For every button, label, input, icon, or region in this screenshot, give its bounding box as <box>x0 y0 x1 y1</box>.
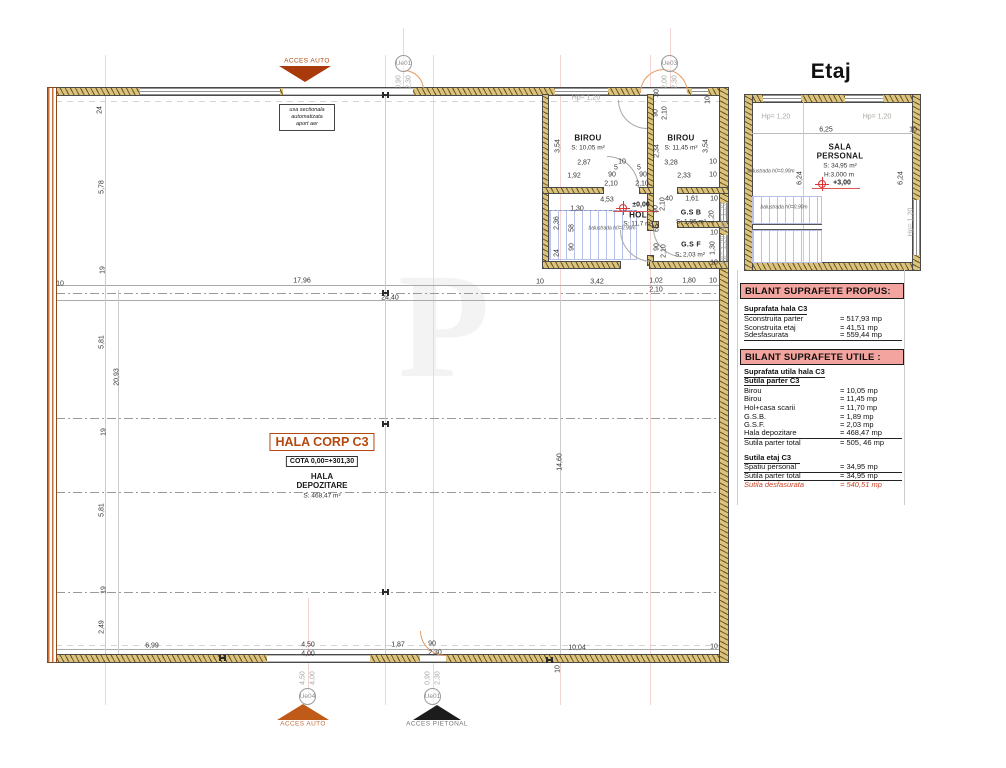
door-tag-ue01: Ue01 <box>424 688 441 705</box>
door-tags-layer: Ue010,902,30Ue032,002,30Ue044,504,00Ue01… <box>0 0 1006 768</box>
door-dimension-label: 2,30 <box>672 75 679 89</box>
door-tag-ue03: Ue03 <box>661 55 678 72</box>
floor-plan-sheet: P <box>0 0 1006 768</box>
door-dimension-label: 2,00 <box>662 75 669 89</box>
door-dimension-label: 4,50 <box>300 671 307 685</box>
door-dimension-label: 2,30 <box>435 671 442 685</box>
door-tag-ue01: Ue01 <box>395 55 412 72</box>
door-dimension-label: 0,90 <box>396 75 403 89</box>
door-tag-ue04: Ue04 <box>299 688 316 705</box>
door-dimension-label: 4,00 <box>310 671 317 685</box>
door-dimension-label: 2,30 <box>406 75 413 89</box>
door-dimension-label: 0,90 <box>425 671 432 685</box>
